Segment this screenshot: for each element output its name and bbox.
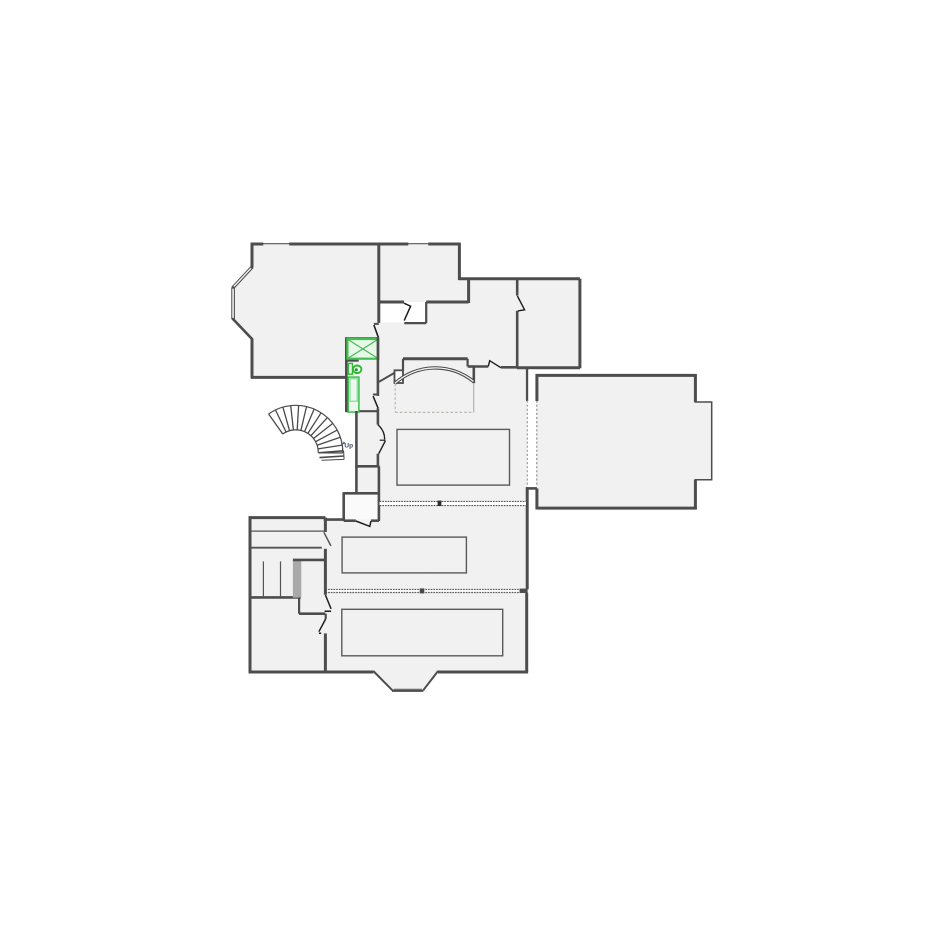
- svg-text:Up: Up: [344, 443, 353, 450]
